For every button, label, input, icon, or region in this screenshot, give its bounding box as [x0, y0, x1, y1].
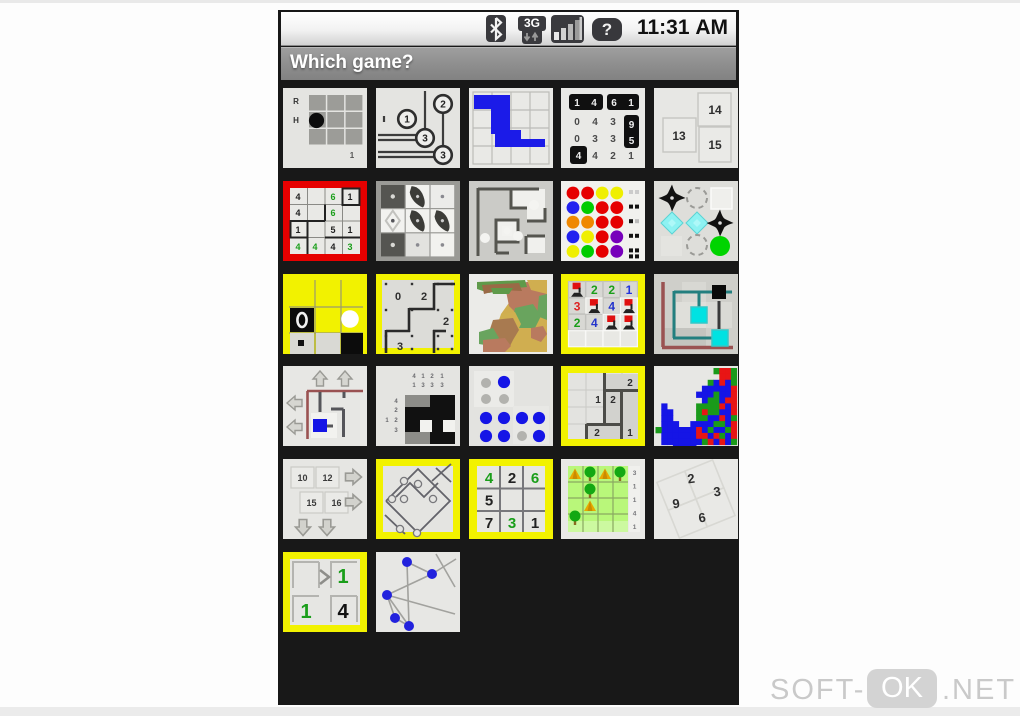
svg-text:4: 4	[593, 151, 599, 162]
svg-text:1: 1	[628, 428, 634, 439]
svg-text:1: 1	[300, 601, 311, 623]
svg-text:4: 4	[633, 511, 637, 518]
svg-text:2: 2	[628, 378, 634, 389]
svg-text:4: 4	[295, 192, 300, 202]
svg-text:4: 4	[609, 299, 616, 313]
svg-text:1: 1	[530, 515, 538, 532]
svg-text:3: 3	[507, 515, 515, 532]
svg-text:4: 4	[337, 601, 349, 623]
svg-text:6: 6	[330, 208, 335, 218]
svg-text:2: 2	[507, 470, 515, 487]
svg-text:1: 1	[347, 192, 352, 202]
svg-text:4: 4	[295, 208, 300, 218]
svg-text:15: 15	[306, 498, 316, 508]
svg-text:3: 3	[611, 134, 617, 145]
svg-text:6: 6	[530, 470, 538, 487]
svg-text:2: 2	[591, 283, 598, 297]
svg-text:1: 1	[633, 497, 637, 504]
svg-text:5: 5	[629, 136, 635, 147]
svg-text:2: 2	[609, 283, 616, 297]
svg-text:2: 2	[421, 291, 427, 303]
svg-text:3: 3	[633, 470, 637, 477]
svg-text:3: 3	[574, 299, 581, 313]
svg-text:1: 1	[629, 151, 635, 162]
svg-text:1: 1	[633, 524, 637, 531]
svg-text:2: 2	[443, 316, 449, 328]
svg-text:4: 4	[295, 242, 300, 252]
svg-text:14: 14	[709, 103, 723, 117]
svg-text:6: 6	[330, 192, 335, 202]
svg-text:3: 3	[593, 134, 599, 145]
svg-text:1: 1	[633, 484, 637, 491]
svg-text:1: 1	[347, 225, 352, 235]
svg-text:4: 4	[593, 117, 599, 128]
svg-text:4: 4	[312, 242, 317, 252]
svg-text:4: 4	[576, 151, 582, 162]
svg-text:0: 0	[575, 117, 581, 128]
svg-text:6: 6	[612, 98, 618, 109]
svg-text:R: R	[293, 97, 299, 106]
svg-text:7: 7	[484, 515, 492, 532]
svg-text:1: 1	[596, 395, 602, 406]
svg-text:2: 2	[440, 100, 446, 111]
svg-text:1: 1	[337, 566, 348, 588]
svg-text:3: 3	[440, 151, 446, 162]
svg-text:13: 13	[673, 129, 687, 143]
svg-text:3: 3	[422, 134, 428, 145]
svg-text:1: 1	[629, 98, 635, 109]
svg-text:2: 2	[595, 428, 601, 439]
svg-text:1: 1	[295, 225, 300, 235]
svg-text:12: 12	[322, 473, 332, 483]
svg-text:9: 9	[629, 120, 635, 131]
svg-text:1: 1	[350, 151, 355, 160]
svg-text:1: 1	[626, 283, 633, 297]
svg-text:2: 2	[611, 151, 617, 162]
svg-text:4: 4	[484, 470, 493, 487]
svg-text:16: 16	[331, 498, 341, 508]
svg-text:10: 10	[297, 473, 307, 483]
svg-text:4: 4	[592, 98, 598, 109]
svg-text:H: H	[293, 116, 299, 125]
svg-text:5: 5	[330, 225, 335, 235]
svg-text:4: 4	[591, 315, 598, 329]
svg-text:0: 0	[575, 134, 581, 145]
svg-text:1: 1	[575, 98, 581, 109]
svg-text:2: 2	[611, 395, 617, 406]
svg-text:1: 1	[404, 115, 410, 126]
svg-text:5: 5	[484, 493, 492, 510]
svg-text:3: 3	[611, 117, 617, 128]
svg-text:15: 15	[709, 138, 723, 152]
svg-text:3: 3	[347, 242, 352, 252]
svg-text:3: 3	[397, 341, 403, 353]
svg-text:0: 0	[395, 291, 401, 303]
svg-text:2: 2	[574, 315, 581, 329]
svg-text:4: 4	[330, 242, 335, 252]
